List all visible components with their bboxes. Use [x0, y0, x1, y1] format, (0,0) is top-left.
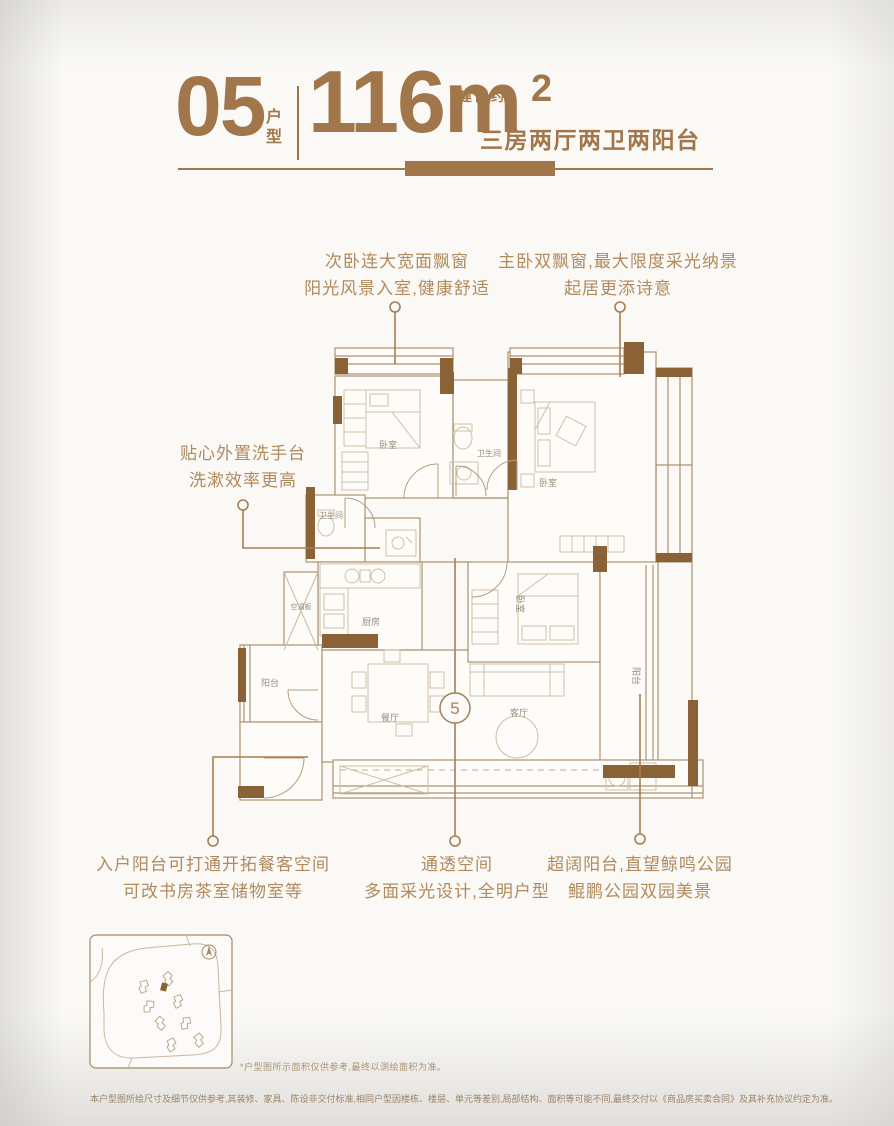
floorplan-poster: 05 户型 116m 2 建面约 三房两厅两卫两阳台 次卧连大宽面飘窗 阳光风景…: [0, 0, 894, 1126]
room-label-ac-panel: 空调板: [291, 602, 312, 611]
room-label-balcony-right: 阳台: [631, 667, 642, 685]
sitemap-footnote: *户型图所示面积仅供参考,最终以测绘面积为准。: [240, 1060, 447, 1073]
floor-plan-canvas: 5 卧室 卫生间 卧室 卫生间 空调板 厨房 阳台 餐厅 客厅 卧室 阳台: [0, 0, 894, 1126]
plan-rooms: [240, 348, 703, 800]
disclaimer-text: 本户型图所绘尺寸及细节仅供参考,其装修、家具、陈设非交付标准,相同户型因楼栋、楼…: [90, 1092, 830, 1105]
room-label-secondary-bedroom: 卧室: [379, 439, 397, 450]
site-map: [90, 935, 232, 1068]
room-label-bedroom-third: 卧室: [515, 595, 526, 613]
unit-circle-number: 5: [450, 699, 459, 718]
room-label-bathroom-mid: 卫生间: [319, 510, 343, 520]
room-label-master-bedroom: 卧室: [539, 477, 557, 488]
room-label-dining: 餐厅: [381, 712, 399, 723]
room-label-living: 客厅: [510, 707, 528, 718]
room-label-kitchen: 厨房: [362, 616, 380, 627]
unit-circle-badge: 5: [440, 693, 470, 723]
room-label-balcony-left: 阳台: [261, 677, 279, 688]
room-label-bathroom-top: 卫生间: [477, 448, 501, 458]
